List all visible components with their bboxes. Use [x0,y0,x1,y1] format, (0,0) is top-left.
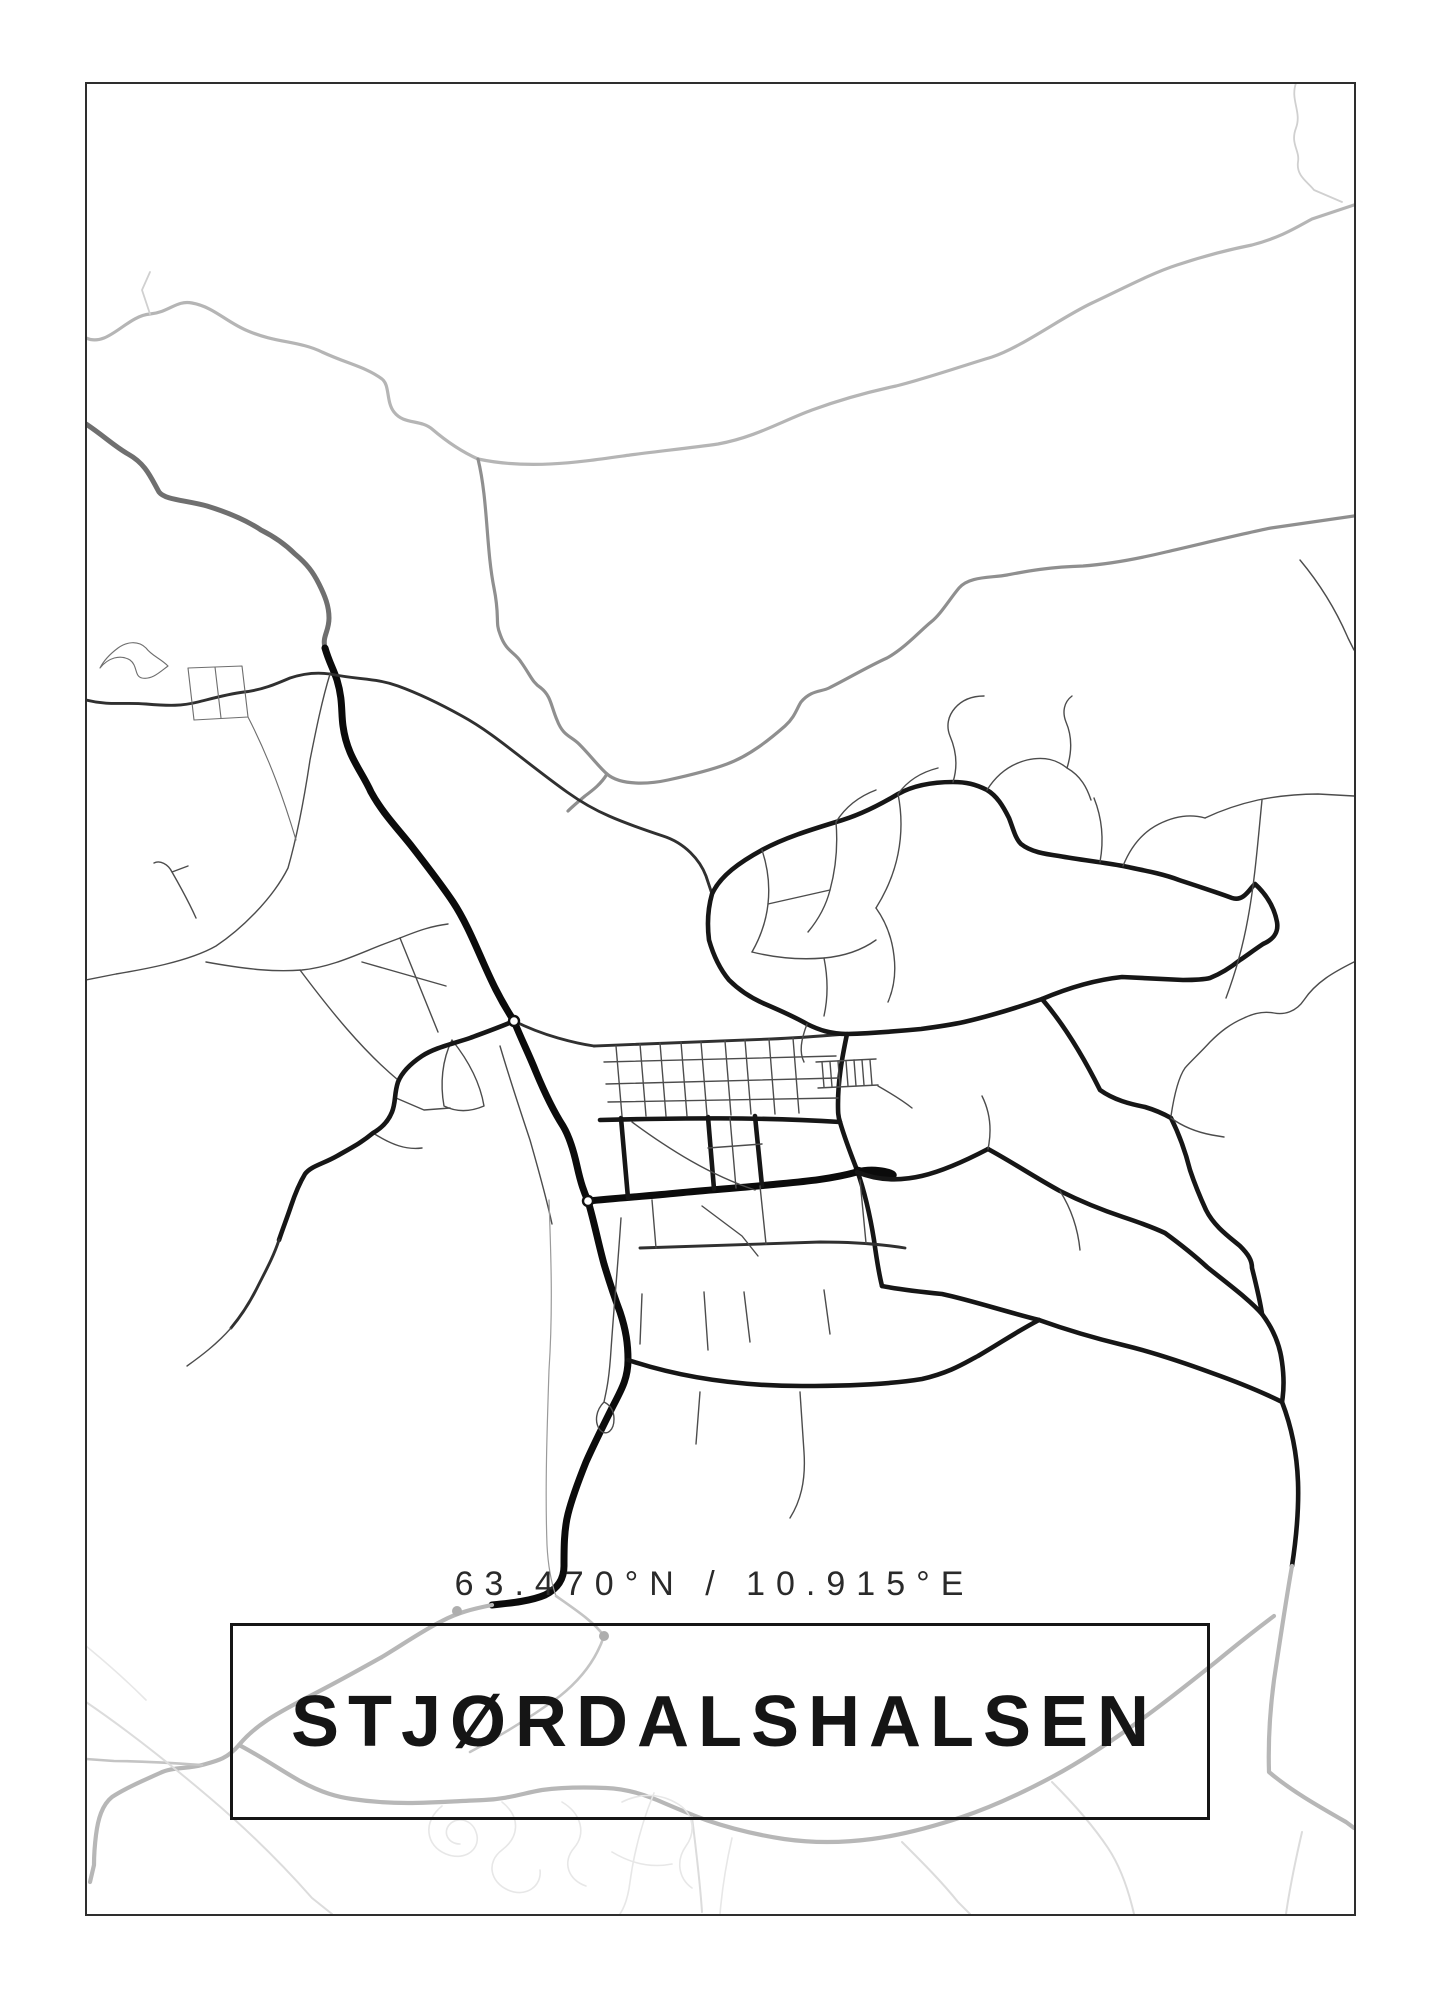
coordinates-label: 63.470°N / 10.915°E [0,1565,1429,1604]
map-poster: 63.470°N / 10.915°E STJØRDALSHALSEN [0,0,1429,2000]
title-box: STJØRDALSHALSEN [230,1623,1210,1820]
city-title: STJØRDALSHALSEN [291,1681,1158,1763]
